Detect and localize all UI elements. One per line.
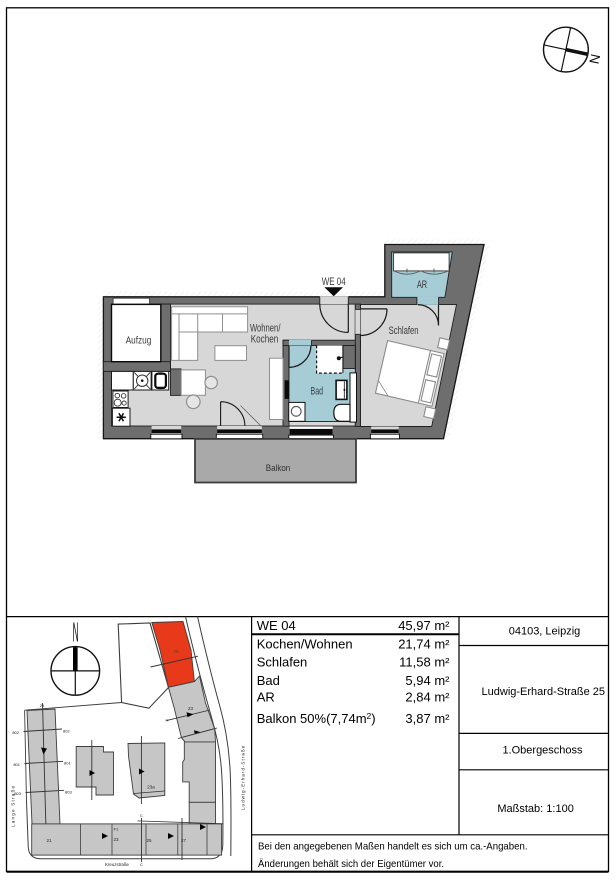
svg-text:Balkon 50%(7,74m2): Balkon 50%(7,74m2) <box>257 711 376 726</box>
svg-text:21: 21 <box>46 838 52 843</box>
svg-text:Ludwig-Erhard-Straße 25: Ludwig-Erhard-Straße 25 <box>482 686 606 698</box>
svg-text:3,87 m²: 3,87 m² <box>405 711 450 726</box>
svg-text:23a: 23a <box>147 785 155 790</box>
svg-text:Schlafen: Schlafen <box>389 325 419 337</box>
svg-text:803: 803 <box>65 790 72 795</box>
svg-text:H: H <box>166 718 169 723</box>
svg-text:N: N <box>73 617 79 648</box>
svg-text:Wohnen/: Wohnen/ <box>250 323 281 335</box>
svg-text:Änderungen behält sich der Eig: Änderungen behält sich der Eigentümer vo… <box>258 858 444 870</box>
svg-text:29: 29 <box>173 649 179 654</box>
svg-text:11,58 m²: 11,58 m² <box>399 655 450 670</box>
svg-text:WE 04: WE 04 <box>257 618 296 633</box>
svg-text:AR: AR <box>257 690 275 705</box>
svg-text:801: 801 <box>64 761 71 766</box>
svg-text:04103, Leipzig: 04103, Leipzig <box>509 626 581 638</box>
svg-text:Bad: Bad <box>257 673 280 688</box>
svg-text:Kreuzstraße: Kreuzstraße <box>105 862 129 867</box>
svg-text:23: 23 <box>188 706 194 711</box>
svg-text:27: 27 <box>181 838 187 843</box>
svg-text:29: 29 <box>40 703 45 708</box>
svg-text:Ludwig-Erhard-Straße: Ludwig-Erhard-Straße <box>241 745 246 810</box>
svg-text:45,97 m²: 45,97 m² <box>398 618 450 633</box>
svg-text:801: 801 <box>13 762 20 767</box>
svg-text:21,74 m²: 21,74 m² <box>398 636 450 651</box>
svg-text:WE 04: WE 04 <box>322 276 346 288</box>
svg-text:F1: F1 <box>114 827 119 832</box>
svg-text:1.Obergeschoss: 1.Obergeschoss <box>502 745 583 757</box>
svg-text:Bei den angegebenen Maßen hand: Bei den angegebenen Maßen handelt es sic… <box>258 841 528 852</box>
svg-text:AR: AR <box>417 279 427 291</box>
svg-text:2,84 m²: 2,84 m² <box>405 690 450 705</box>
svg-text:C: C <box>140 813 143 818</box>
svg-text:C: C <box>140 862 143 867</box>
svg-text:Kochen/Wohnen: Kochen/Wohnen <box>257 636 353 651</box>
svg-text:25: 25 <box>146 838 152 843</box>
svg-text:Maßstab: 1:100: Maßstab: 1:100 <box>497 803 573 815</box>
svg-text:Kochen: Kochen <box>251 334 279 346</box>
svg-text:Aufzug: Aufzug <box>126 335 152 347</box>
svg-text:5,94 m²: 5,94 m² <box>405 673 450 688</box>
svg-text:Bad: Bad <box>311 386 324 398</box>
svg-text:Schlafen: Schlafen <box>257 655 308 670</box>
svg-text:802: 802 <box>12 730 19 735</box>
svg-text:802: 802 <box>63 729 70 734</box>
svg-text:Balkon: Balkon <box>266 463 291 474</box>
svg-text:Lange Straße: Lange Straße <box>11 785 16 827</box>
svg-text:23: 23 <box>113 837 119 842</box>
